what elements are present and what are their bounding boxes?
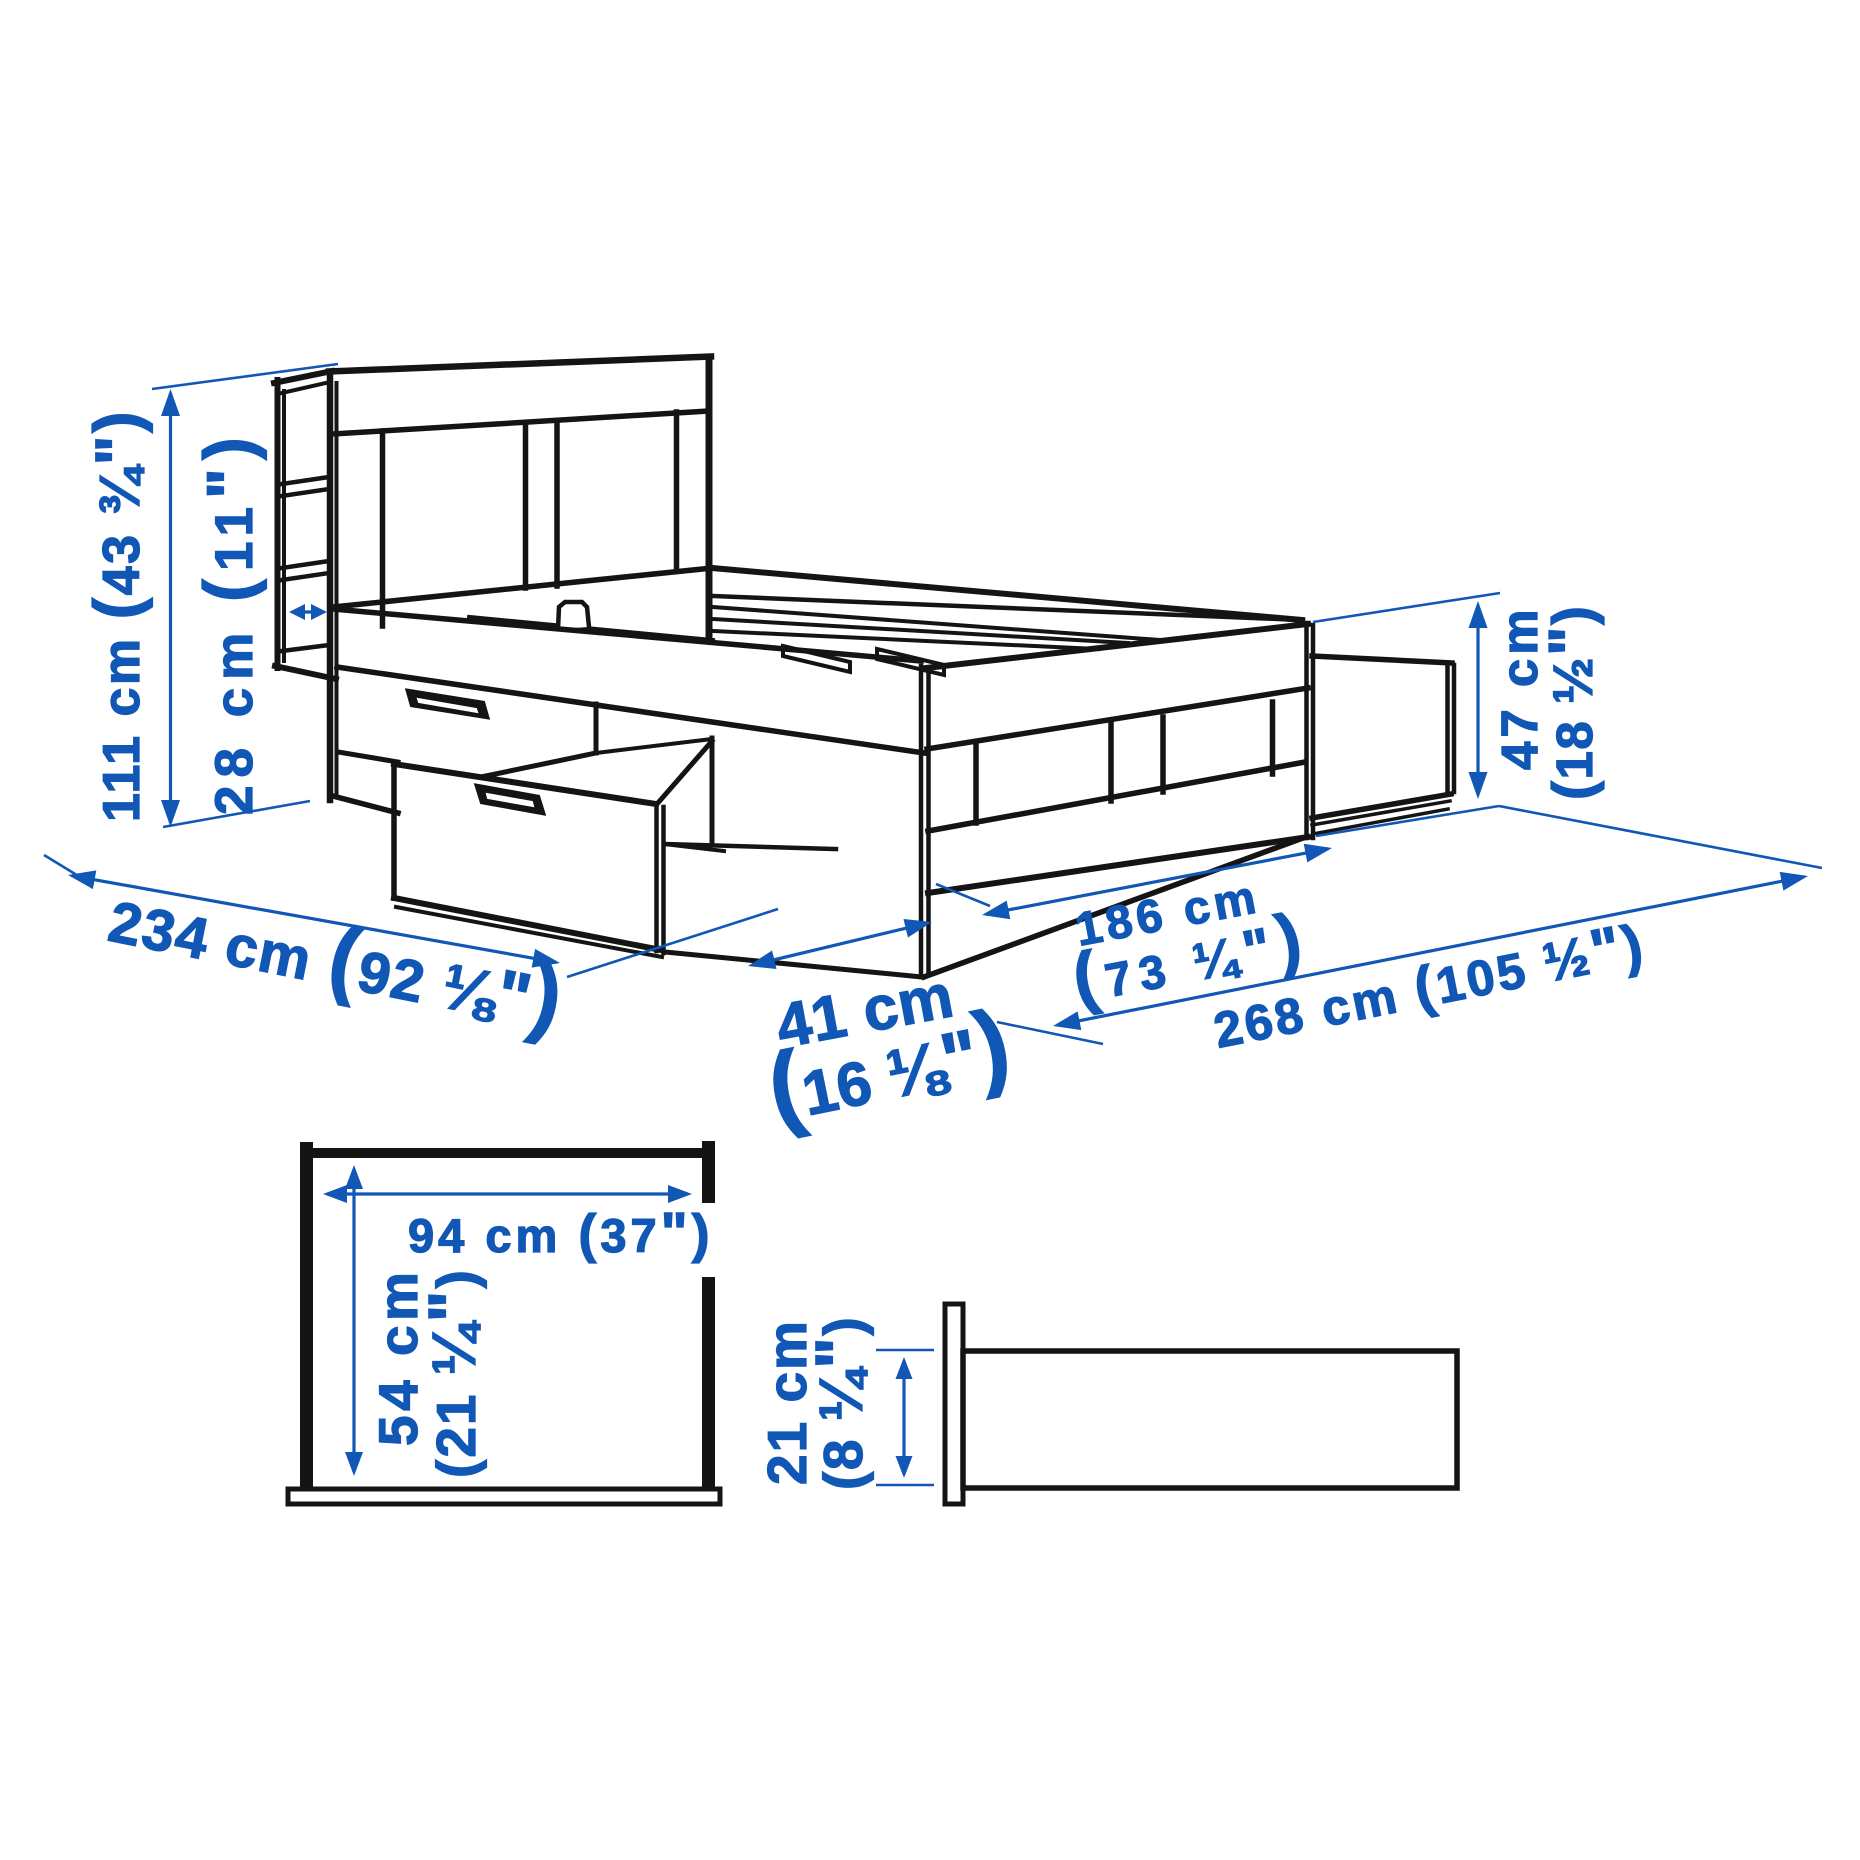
svg-text:94 cm (37"): 94 cm (37")	[408, 1201, 714, 1265]
svg-text:(8 ¼"): (8 ¼")	[802, 1316, 877, 1490]
svg-text:(18 ½"): (18 ½")	[1537, 605, 1606, 800]
svg-text:(21 ¼"): (21 ¼")	[415, 1268, 490, 1478]
